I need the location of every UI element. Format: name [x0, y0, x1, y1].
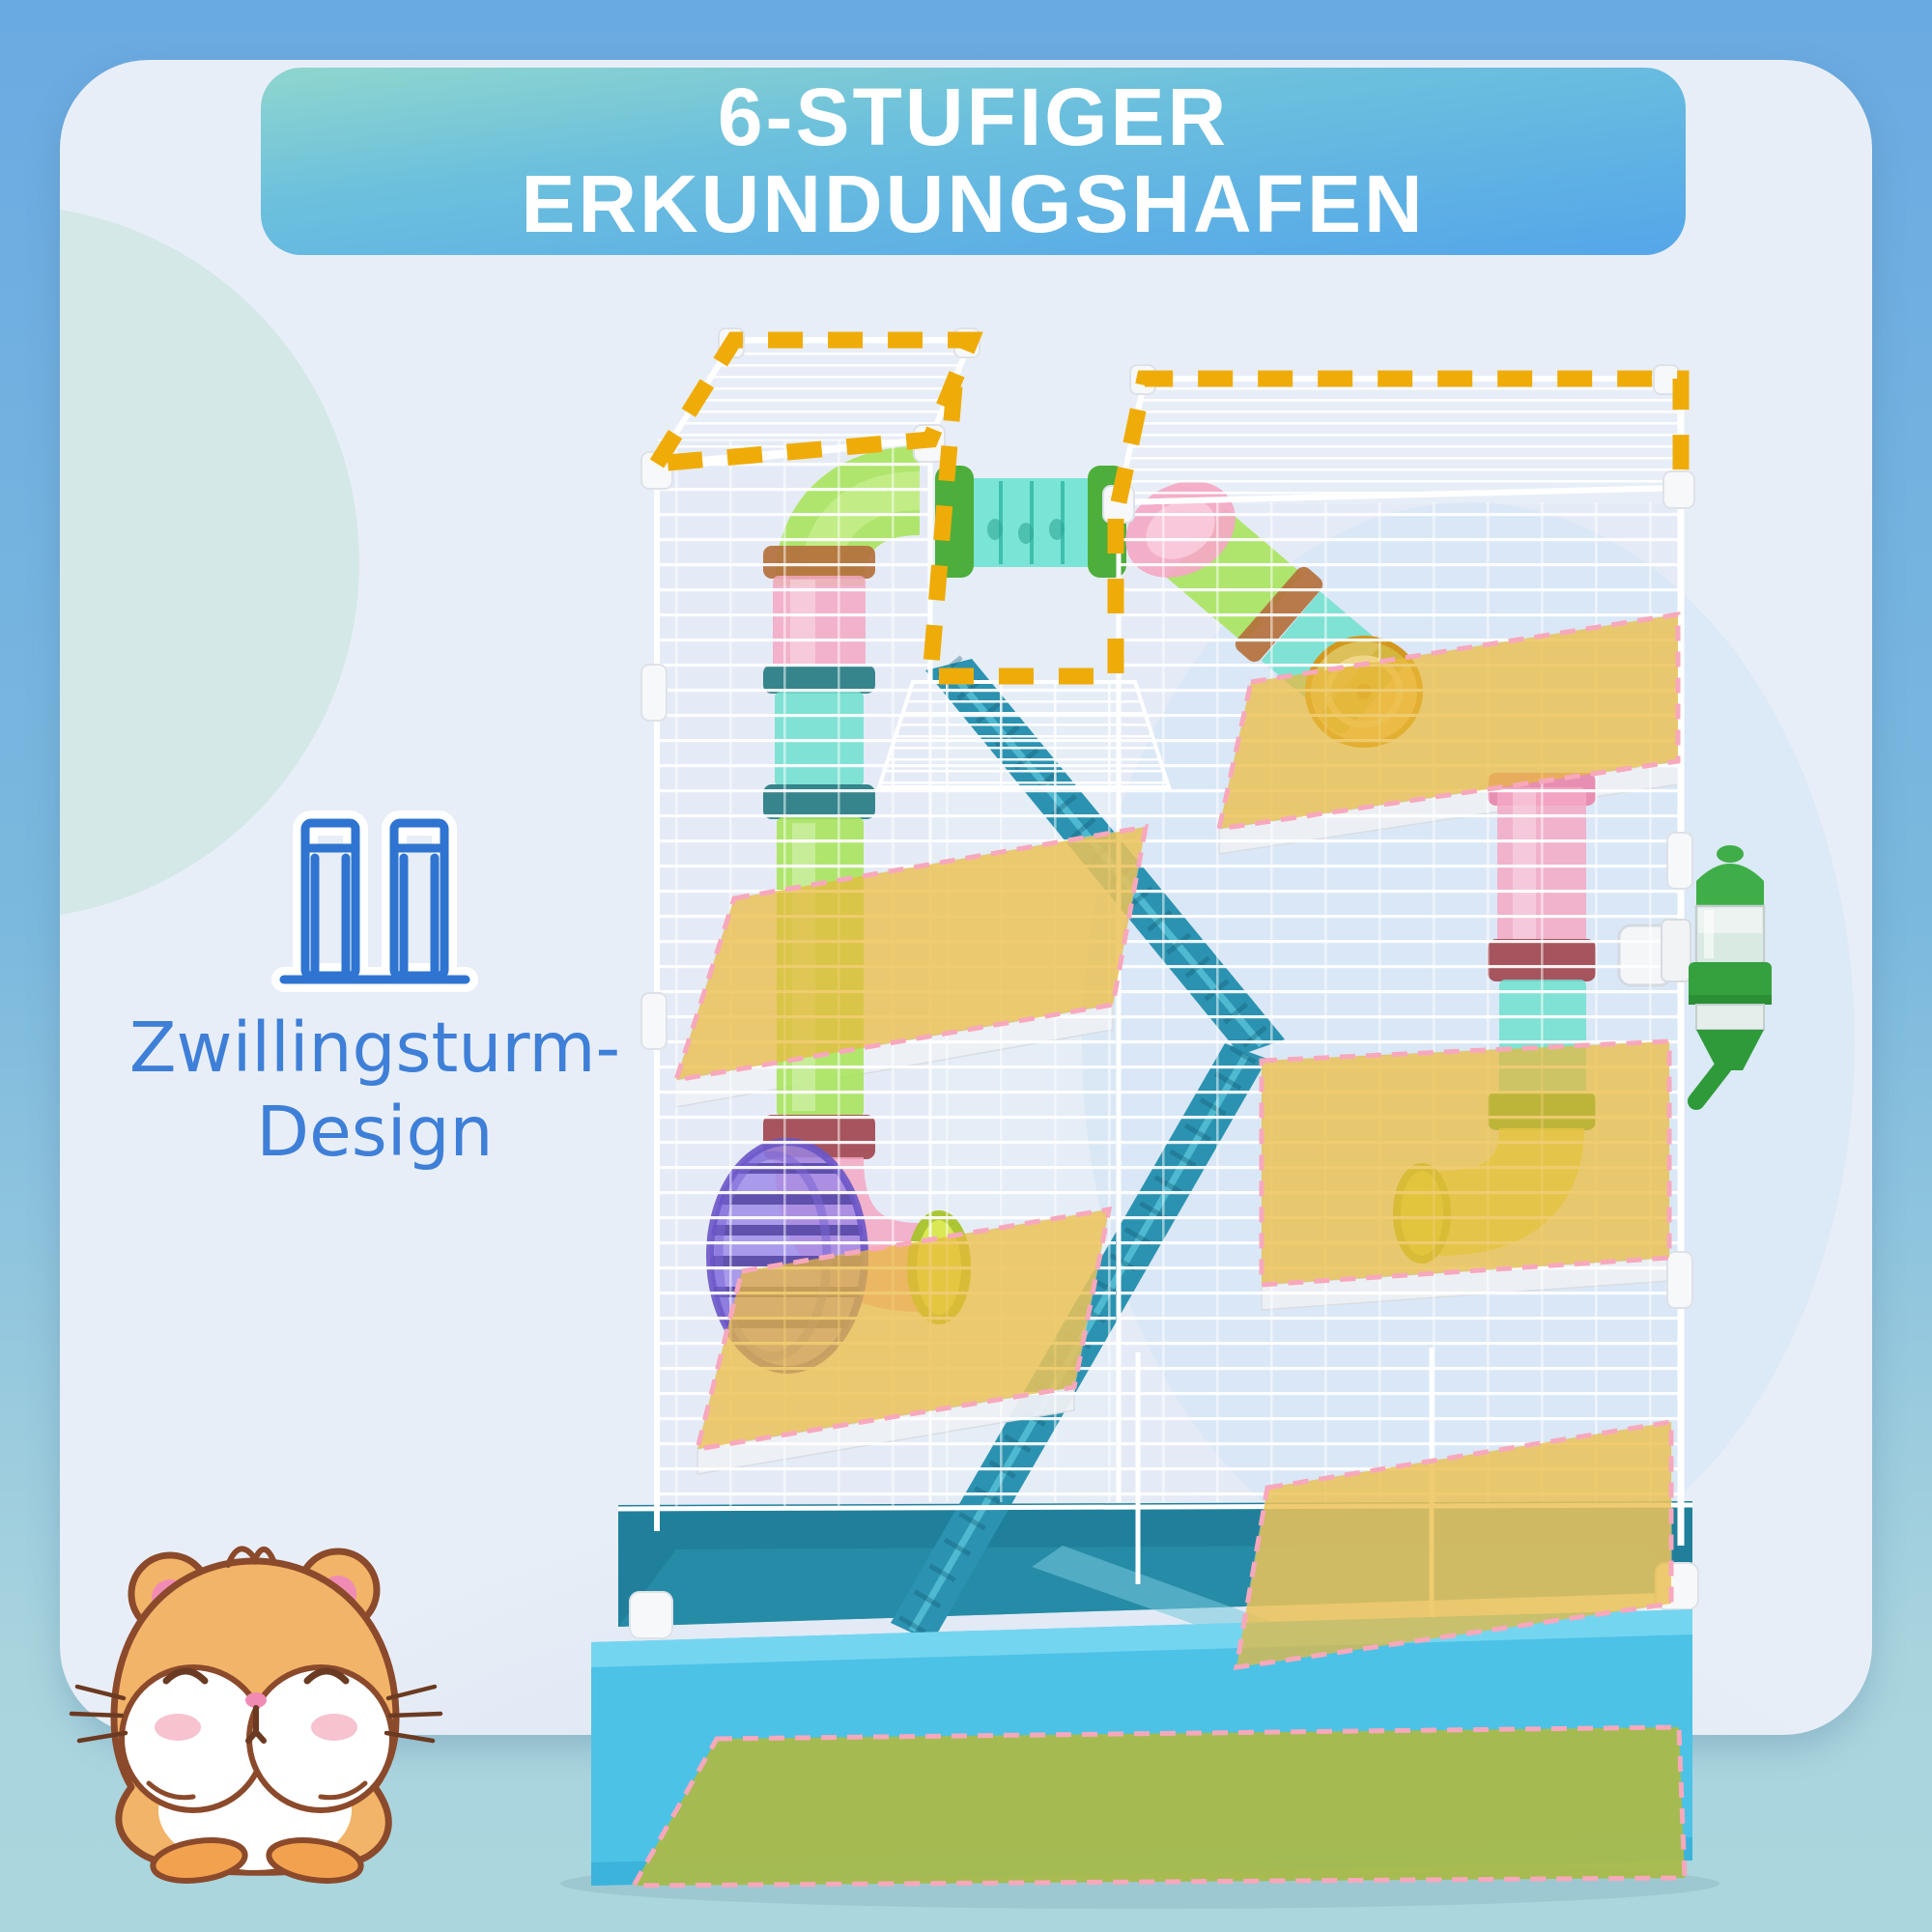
- feature-label-line-2: Design: [85, 1091, 665, 1175]
- product-infographic: 6-STUFIGER ERKUNDUNGSHAFEN: [0, 0, 1932, 1932]
- feature-label-line-1: Zwillingsturm-: [85, 1007, 665, 1091]
- title-line-1: 6-STUFIGER: [718, 74, 1229, 161]
- header-banner: 6-STUFIGER ERKUNDUNGSHAFEN: [261, 68, 1686, 255]
- title-line-2: ERKUNDUNGSHAFEN: [521, 161, 1425, 248]
- floor-mat-overlay: [634, 1727, 1685, 1886]
- feature-callout: Zwillingsturm- Design: [85, 810, 665, 1174]
- twin-towers-icon: [249, 810, 500, 993]
- feature-label: Zwillingsturm- Design: [85, 1007, 665, 1174]
